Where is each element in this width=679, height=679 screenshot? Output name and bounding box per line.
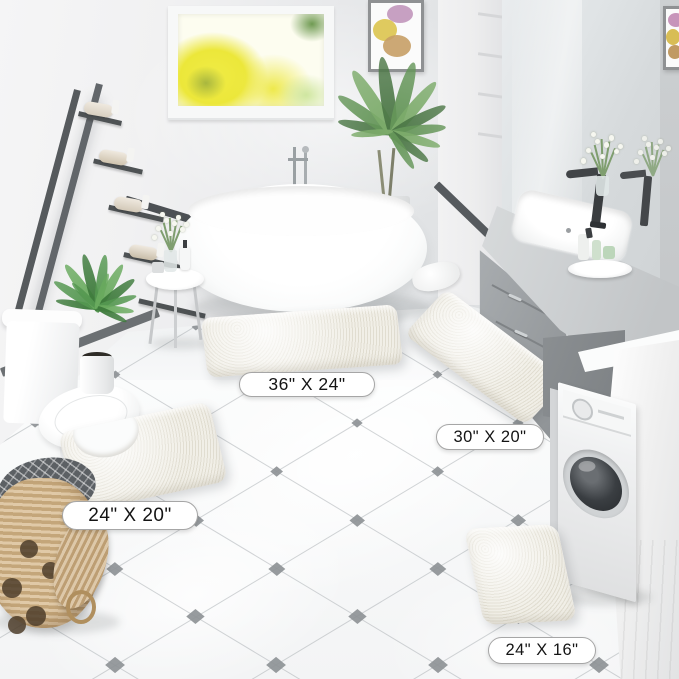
basket-dot <box>26 606 46 626</box>
flower-bloom <box>666 146 671 151</box>
window-view <box>178 14 324 106</box>
flower-bloom <box>172 221 177 226</box>
size-label-text: 24" X 16" <box>505 641 578 660</box>
flower-bloom <box>160 212 165 217</box>
size-label-24x16: 24" X 16" <box>488 637 596 664</box>
washer-door-glass <box>570 450 622 517</box>
table-leg <box>174 288 177 348</box>
flower-bloom <box>176 215 181 220</box>
washing-machine <box>558 382 636 602</box>
flower-bloom <box>642 136 647 141</box>
green-jar <box>592 240 601 260</box>
flower-bloom <box>591 132 596 137</box>
wall-art-right <box>663 6 679 70</box>
flower-bloom <box>600 154 605 159</box>
lotion-bottle <box>180 246 190 270</box>
counter-tray <box>568 260 632 278</box>
flower-bloom <box>164 218 169 223</box>
flower-bloom <box>646 142 651 147</box>
basket-dot <box>8 616 26 634</box>
green-branch <box>290 14 324 42</box>
flower-bloom <box>654 145 659 150</box>
flower-bloom <box>156 226 161 231</box>
flower-bloom <box>609 135 614 140</box>
size-label-text: 24" X 20" <box>88 505 172 527</box>
flower-bloom <box>180 227 185 232</box>
art-tan-flower <box>383 35 411 57</box>
table-vase <box>164 250 177 272</box>
size-label-text: 36" X 24" <box>268 374 345 395</box>
art-pink-flower <box>668 13 679 27</box>
bottle-pump <box>183 240 187 248</box>
flower-bloom <box>662 151 667 156</box>
flower-bloom <box>638 150 643 155</box>
tall-shelf-column <box>438 0 504 305</box>
flower-bloom <box>650 155 655 160</box>
size-label-text: 30" X 20" <box>453 428 526 447</box>
bathtub-rim <box>188 186 414 236</box>
bathroom-product-photo: 36" X 24" 30" X 20" 24" X 20" 24" X 16" <box>0 0 679 679</box>
flower-bloom <box>168 231 173 236</box>
wall-art-floral <box>368 0 424 72</box>
flower-bloom <box>634 159 639 164</box>
tree-shadow-foliage <box>186 66 226 100</box>
size-label-30x20: 30" X 20" <box>436 424 544 450</box>
art-yellow-flower <box>666 29 679 45</box>
basket-lid-handle <box>66 590 96 624</box>
tub-faucet-spout <box>288 158 308 161</box>
green-jar <box>603 246 615 259</box>
plant-pot <box>80 356 114 394</box>
basket-dot <box>2 578 22 598</box>
basket-dot <box>20 540 38 558</box>
counter-vase <box>596 176 609 196</box>
flower-bloom <box>658 139 663 144</box>
flower-bloom <box>152 235 157 240</box>
sink-drain <box>566 228 571 233</box>
bath-mat-24x16 <box>464 524 577 625</box>
size-label-36x24: 36" X 24" <box>239 372 375 397</box>
candle <box>152 262 164 273</box>
size-label-24x20: 24" X 20" <box>62 501 198 530</box>
art-tan-flower <box>668 45 679 59</box>
tub-faucet-handle <box>302 146 309 153</box>
flower-bloom <box>184 222 189 227</box>
flower-bloom <box>618 144 623 149</box>
